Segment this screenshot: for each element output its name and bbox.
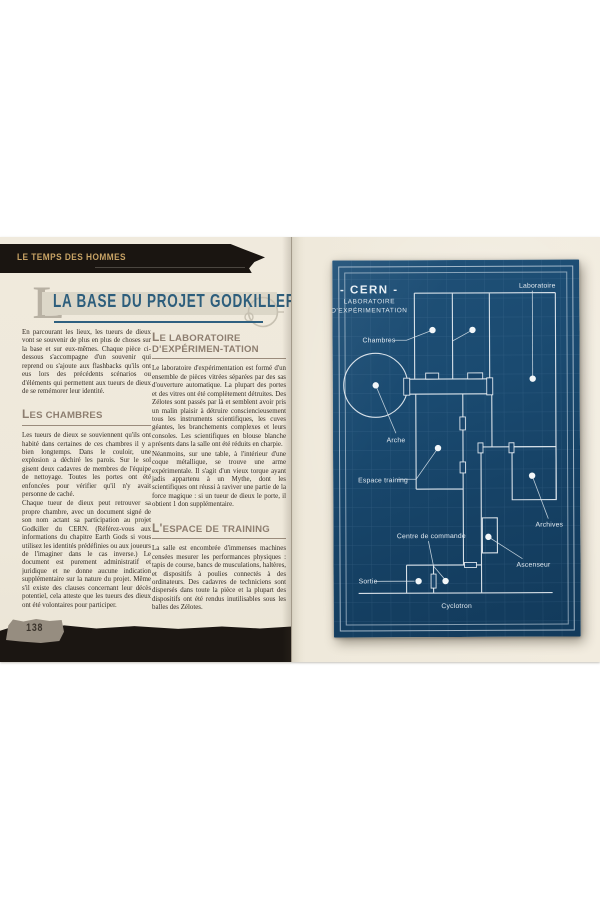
book-scan: LE TEMPS DES HOMMES L LA BASE DU PROJET … — [0, 0, 600, 900]
book-gutter-line — [291, 237, 292, 662]
page-number: 138 — [26, 622, 43, 634]
blueprint-floorplan: - CERN - LABORATOIRE D'EXPÉRIMENTATION — [332, 259, 581, 637]
page-title: LA BASE DU PROJET GODKILLER — [53, 291, 296, 312]
paragraph: Le laboratoire d'expérimentation est for… — [152, 365, 286, 449]
title-underline — [54, 321, 263, 323]
paragraph: Les tueurs de dieux se souviennent qu'il… — [22, 432, 151, 499]
label-sortie: Sortie — [359, 578, 378, 585]
book-spread: LE TEMPS DES HOMMES L LA BASE DU PROJET … — [0, 237, 600, 662]
label-ascenseur: Ascenseur — [517, 562, 551, 569]
paragraph: Chaque tueur de dieux peut retrouver sa … — [22, 500, 151, 609]
section-heading-training: L'ESPACE DE TRAINING — [152, 522, 286, 540]
text-column-left: En parcourant les lieux, les tueurs de d… — [22, 329, 151, 610]
label-laboratoire: Laboratoire — [519, 283, 556, 290]
paragraph: La salle est encombrée d'immenses machin… — [152, 545, 286, 612]
banner-rule — [95, 267, 245, 268]
label-chambres: Chambres — [363, 337, 396, 344]
blueprint-title: - CERN - — [340, 284, 399, 296]
blueprint-panel: - CERN - LABORATOIRE D'EXPÉRIMENTATION — [332, 259, 581, 637]
section-heading-chambres: LES CHAMBRES — [22, 408, 151, 426]
label-arche: Arche — [387, 437, 406, 444]
page-left: LE TEMPS DES HOMMES L LA BASE DU PROJET … — [0, 237, 291, 662]
blueprint-subtitle-2: D'EXPÉRIMENTATION — [332, 305, 407, 314]
blueprint-subtitle-1: LABORATOIRE — [344, 298, 395, 305]
text-column-right: LE LABORATOIRE D'EXPÉRIMEN-TATION Le lab… — [152, 329, 286, 613]
chapter-banner-label: LE TEMPS DES HOMMES — [17, 252, 126, 262]
label-cyclotron: Cyclotron — [441, 603, 472, 610]
label-espace-training: Espace training — [358, 477, 408, 484]
section-heading-laboratoire: LE LABORATOIRE D'EXPÉRIMEN-TATION — [152, 331, 286, 359]
intro-paragraph: En parcourant les lieux, les tueurs de d… — [22, 329, 151, 396]
label-centre-de-commande: Centre de commande — [397, 533, 466, 540]
chapter-banner: LE TEMPS DES HOMMES — [0, 244, 265, 273]
label-archives: Archives — [535, 522, 563, 529]
paragraph: Néanmoins, sur une table, à l'intérieur … — [152, 451, 286, 510]
